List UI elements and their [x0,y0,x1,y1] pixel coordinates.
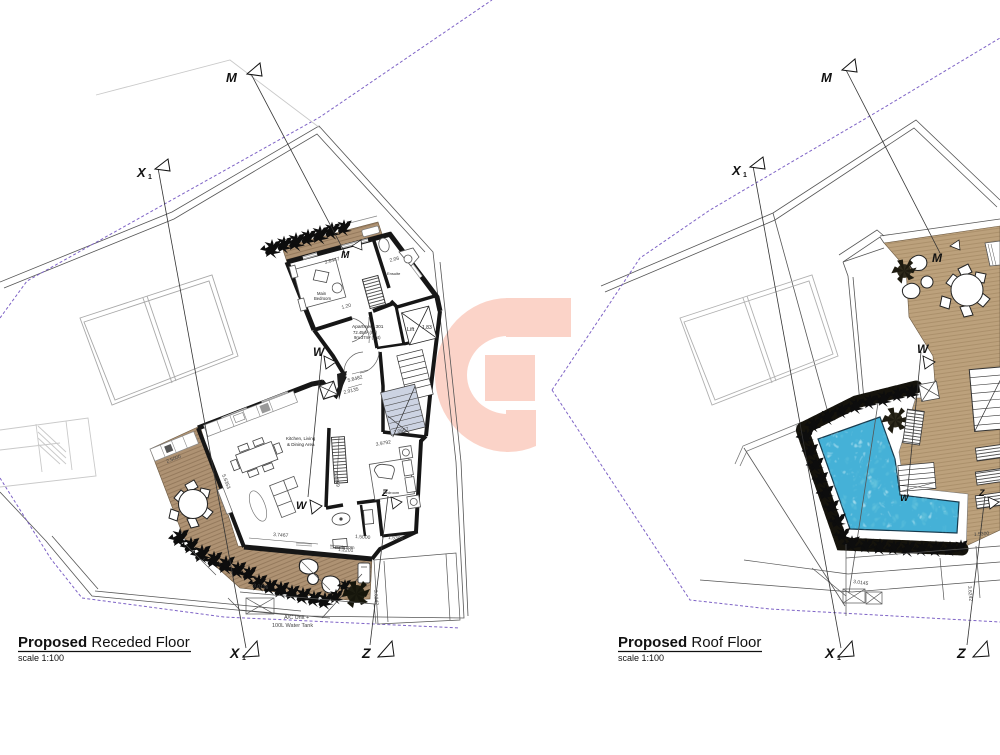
svg-text:1: 1 [743,172,747,179]
svg-text:Proposed Roof Floor: Proposed Roof Floor [618,634,761,651]
svg-text:Z: Z [956,645,966,661]
svg-text:1.5000: 1.5000 [355,534,371,541]
svg-text:X: X [824,645,836,661]
svg-text:Kitchen, Living: Kitchen, Living [286,436,316,441]
svg-text:Z: Z [381,488,388,498]
svg-text:Z: Z [361,645,371,661]
svg-text:W: W [917,342,930,356]
svg-text:& Dining Area: & Dining Area [287,442,315,447]
svg-text:Z: Z [978,488,985,498]
svg-text:1.5300: 1.5300 [974,531,990,538]
svg-text:9m.37m² (Ext): 9m.37m² (Ext) [354,335,381,340]
svg-text:1.83: 1.83 [422,325,432,331]
svg-text:M: M [821,70,833,85]
svg-text:Lift: Lift [407,327,415,333]
svg-text:100L Water Tank: 100L Water Tank [272,623,313,629]
svg-text:X: X [229,645,241,661]
svg-text:M: M [932,251,943,265]
svg-text:Proposed Receded Floor: Proposed Receded Floor [18,634,190,651]
svg-text:Bedroom: Bedroom [314,296,332,301]
svg-text:M: M [226,70,238,85]
svg-text:1: 1 [148,174,152,181]
svg-text:X: X [731,163,742,178]
svg-text:1.5300: 1.5300 [388,535,404,542]
svg-text:1.2201: 1.2201 [338,547,354,554]
svg-text:scale 1:100: scale 1:100 [18,653,64,663]
svg-text:M: M [341,250,350,261]
svg-text:W: W [296,500,308,512]
svg-text:Ensuite: Ensuite [387,271,401,276]
svg-text:scale 1:100: scale 1:100 [618,653,664,663]
svg-text:3.7467: 3.7467 [273,532,289,539]
svg-text:X: X [136,165,147,180]
